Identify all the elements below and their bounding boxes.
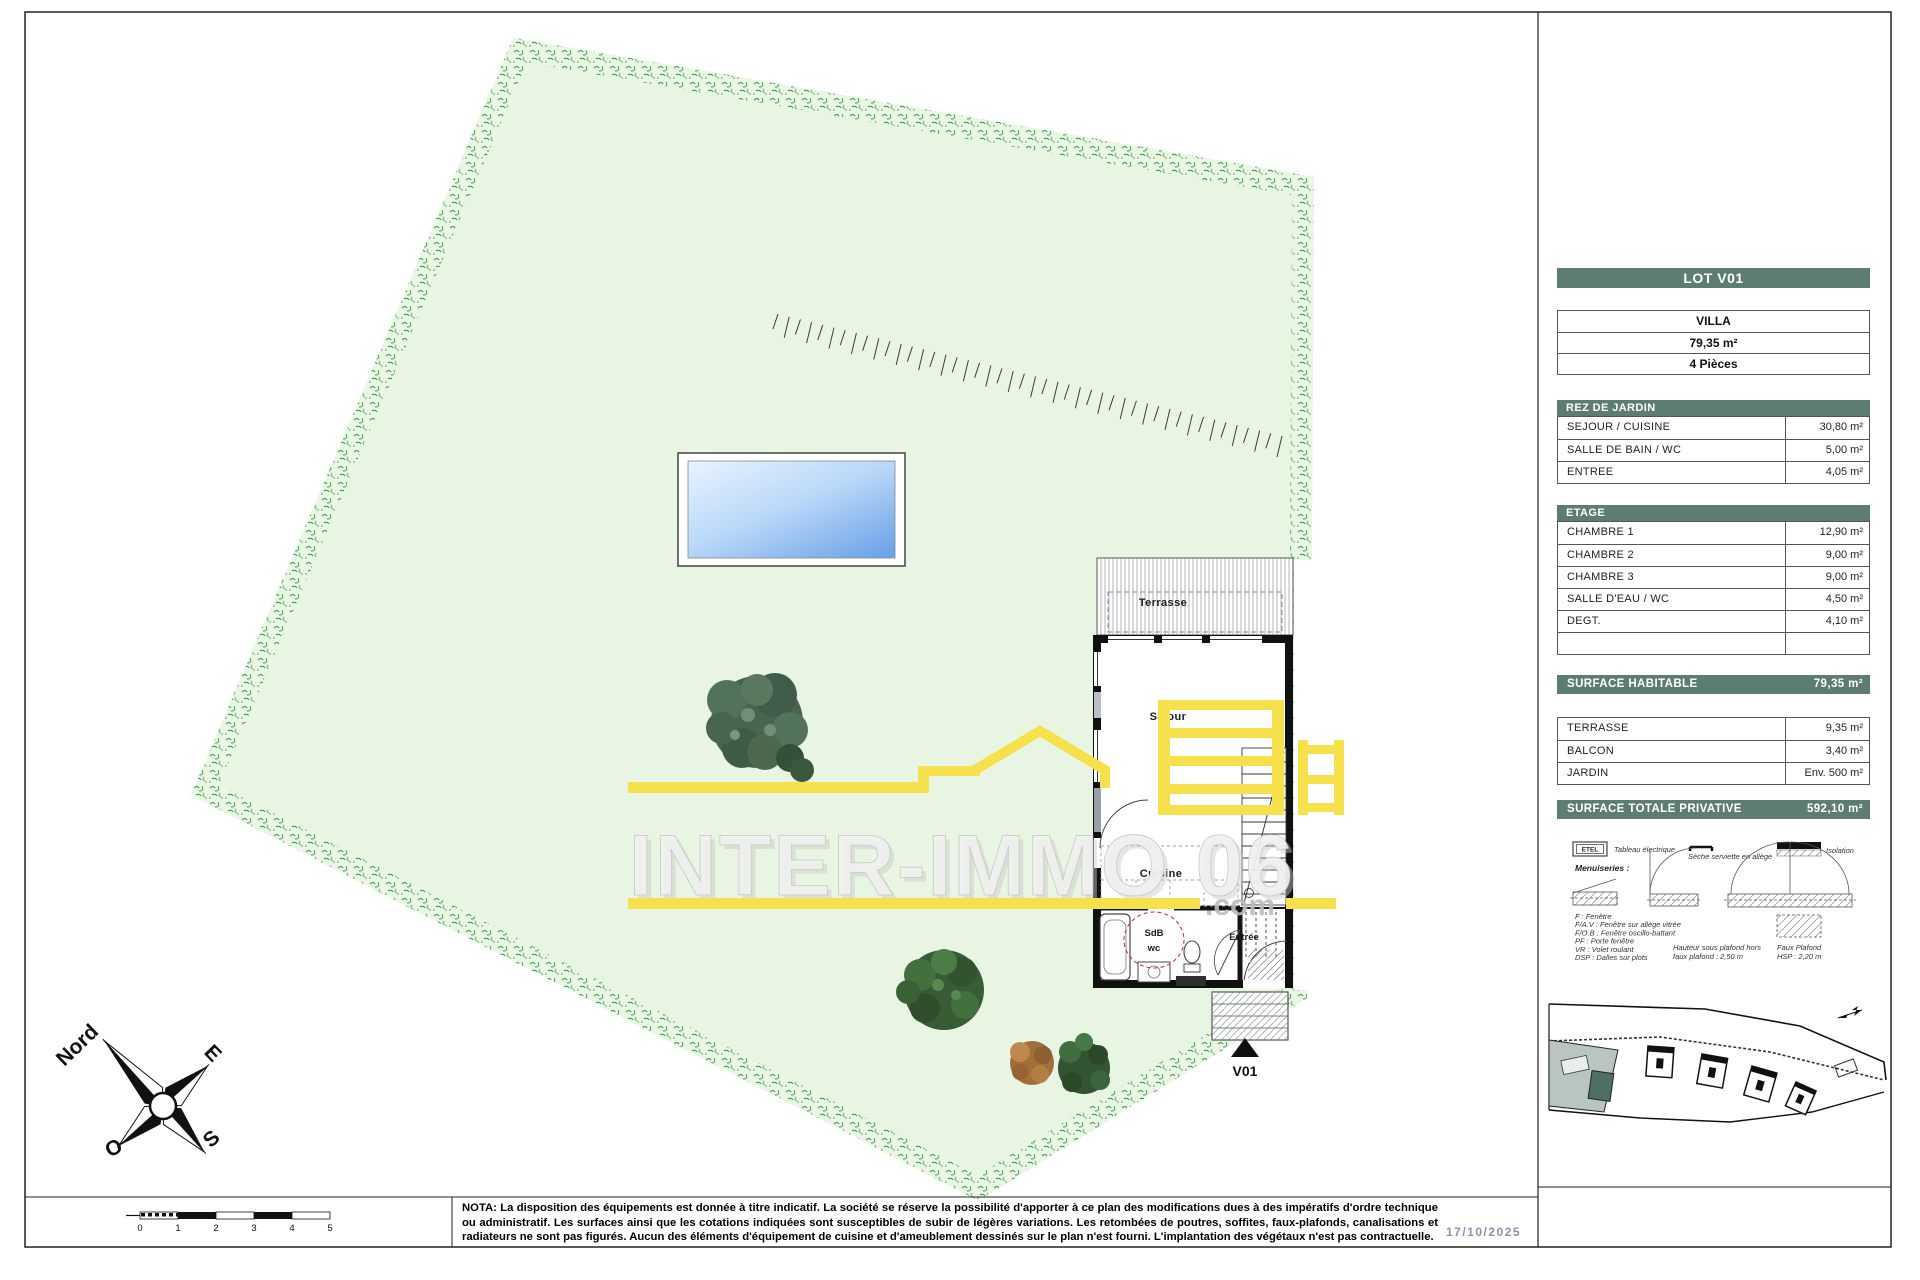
table-row: CHAMBRE 29,00 m² (1558, 544, 1869, 566)
seche-serviette-label: Sèche serviette en allège (1688, 852, 1772, 861)
mini-site-map (1549, 1004, 1886, 1122)
entry-mat (1248, 950, 1284, 982)
legend: ETEL Tableau électrique Sèche serviette … (1570, 842, 1856, 962)
hsp-line1: Hauteur sous plafond hors (1673, 943, 1761, 952)
seche-serviette-icon (1690, 847, 1712, 851)
table-row: CHAMBRE 112,90 m² (1558, 522, 1869, 544)
room-area-value: 9,35 m² (1785, 718, 1869, 740)
annex-surfaces-table: TERRASSE9,35 m²BALCON3,40 m²JARDINEnv. 5… (1557, 717, 1870, 785)
table-row: TERRASSE9,35 m² (1558, 718, 1869, 740)
compass-south-label: S (199, 1126, 225, 1152)
mini-compass-icon (1838, 1006, 1862, 1018)
scale-number: 1 (175, 1223, 180, 1234)
room-label: CHAMBRE 1 (1558, 522, 1785, 544)
isolation-label: Isolation (1826, 846, 1854, 855)
room-area-value: 5,00 m² (1785, 440, 1869, 461)
summary-row: VILLA (1558, 311, 1869, 332)
room-area-value: 9,00 m² (1785, 545, 1869, 566)
window-symbol-1 (1570, 879, 1620, 905)
table-row: SALLE D'EAU / WC4,50 m² (1558, 588, 1869, 610)
compass-rose: Nord E S O (52, 998, 252, 1195)
legend-abbreviation: DSP : Dalles sur plots (1575, 953, 1648, 962)
swimming-pool (678, 453, 905, 566)
scale-number: 0 (137, 1223, 142, 1234)
hsp-line2: faux plafond : 2,50 m (1673, 952, 1743, 961)
menuiseries-label: Menuiseries : (1575, 863, 1629, 873)
room-label: CHAMBRE 3 (1558, 567, 1785, 588)
table-row: DEGT.4,10 m² (1558, 610, 1869, 632)
highlighted-unit (1588, 1071, 1614, 1102)
room-area-value: 30,80 m² (1785, 417, 1869, 439)
section-header-rez-de-jardin: REZ DE JARDIN (1557, 400, 1870, 416)
compass-north-label: Nord (52, 1020, 103, 1071)
table-row: ENTREE4,05 m² (1558, 461, 1869, 483)
faux-plafond-line2: HSP : 2,20 m (1777, 952, 1821, 961)
scale-bar: 012345 (126, 1212, 333, 1234)
table-row: BALCON3,40 m² (1558, 740, 1869, 762)
tree-small-orange (1010, 1041, 1054, 1085)
nota-disclaimer: NOTA: La disposition des équipements est… (462, 1201, 1438, 1245)
room-label: JARDIN (1558, 763, 1785, 784)
plan-date: 17/10/2025 (1446, 1225, 1521, 1239)
section-header-etage: ETAGE (1557, 505, 1870, 521)
table-row (1558, 632, 1869, 654)
faux-plafond-line1: Faux Plafond (1777, 943, 1822, 952)
faux-plafond-icon (1777, 915, 1821, 937)
room-area-value (1785, 633, 1869, 654)
rez-de-jardin-table: SEJOUR / CUISINE30,80 m²SALLE DE BAIN / … (1557, 416, 1870, 484)
scale-number: 4 (289, 1223, 294, 1234)
summary-row: 79,35 m² (1558, 332, 1869, 353)
room-label: DEGT. (1558, 611, 1785, 632)
room-area-value: Env. 500 m² (1785, 763, 1869, 784)
table-row: CHAMBRE 39,00 m² (1558, 566, 1869, 588)
room-label: TERRASSE (1558, 718, 1785, 740)
plan-sheet: Terrasse (0, 0, 1920, 1280)
terrace-label: Terrasse (1139, 597, 1187, 609)
sdb-label: SdB (1145, 928, 1164, 939)
surface-habitable-bar: SURFACE HABITABLE 79,35 m² (1557, 675, 1870, 694)
scale-number: 3 (251, 1223, 256, 1234)
lot-summary-table: VILLA79,35 m²4 Pièces (1557, 310, 1870, 375)
surface-totale-label: SURFACE TOTALE PRIVATIVE (1567, 800, 1742, 819)
room-label: SEJOUR / CUISINE (1558, 417, 1785, 439)
surface-habitable-label: SURFACE HABITABLE (1567, 675, 1698, 694)
wc-label: wc (1147, 943, 1161, 954)
toilet-icon (1184, 941, 1200, 963)
terrace: Terrasse (1097, 558, 1293, 635)
room-label (1558, 633, 1785, 654)
room-area-value: 12,90 m² (1785, 522, 1869, 544)
room-label: CHAMBRE 2 (1558, 545, 1785, 566)
room-area-value: 4,10 m² (1785, 611, 1869, 632)
etage-table: CHAMBRE 112,90 m²CHAMBRE 29,00 m²CHAMBRE… (1557, 521, 1870, 655)
entrance-walkway (1212, 992, 1288, 1040)
table-row: SEJOUR / CUISINE30,80 m² (1558, 417, 1869, 439)
etel-symbol-label: ETEL (1582, 847, 1599, 854)
surface-totale-bar: SURFACE TOTALE PRIVATIVE 592,10 m² (1557, 800, 1870, 819)
room-label: BALCON (1558, 741, 1785, 762)
room-area-value: 9,00 m² (1785, 567, 1869, 588)
entree-label: Entrée (1229, 932, 1259, 943)
room-label: SALLE D'EAU / WC (1558, 589, 1785, 610)
isolation-icon (1777, 842, 1821, 849)
surface-totale-value: 592,10 m² (1807, 800, 1863, 819)
room-area-value: 4,50 m² (1785, 589, 1869, 610)
scale-number: 5 (327, 1223, 332, 1234)
surface-habitable-value: 79,35 m² (1814, 675, 1863, 694)
table-row: JARDINEnv. 500 m² (1558, 762, 1869, 784)
entry-door-gap (1243, 980, 1285, 989)
compass-east-label: E (200, 1040, 226, 1066)
watermark-domain: .com (1205, 889, 1275, 922)
table-row: SALLE DE BAIN / WC5,00 m² (1558, 439, 1869, 461)
room-label: SALLE DE BAIN / WC (1558, 440, 1785, 461)
summary-row: 4 Pièces (1558, 353, 1869, 374)
lot-title-bar: LOT V01 (1557, 268, 1870, 288)
compass-west-label: O (101, 1134, 126, 1162)
lot-marker-label: V01 (1233, 1063, 1258, 1079)
tableau-electrique-label: Tableau électrique (1614, 845, 1675, 854)
room-area-value: 4,05 m² (1785, 462, 1869, 483)
scale-number: 2 (213, 1223, 218, 1234)
room-area-value: 3,40 m² (1785, 741, 1869, 762)
room-label: ENTREE (1558, 462, 1785, 483)
